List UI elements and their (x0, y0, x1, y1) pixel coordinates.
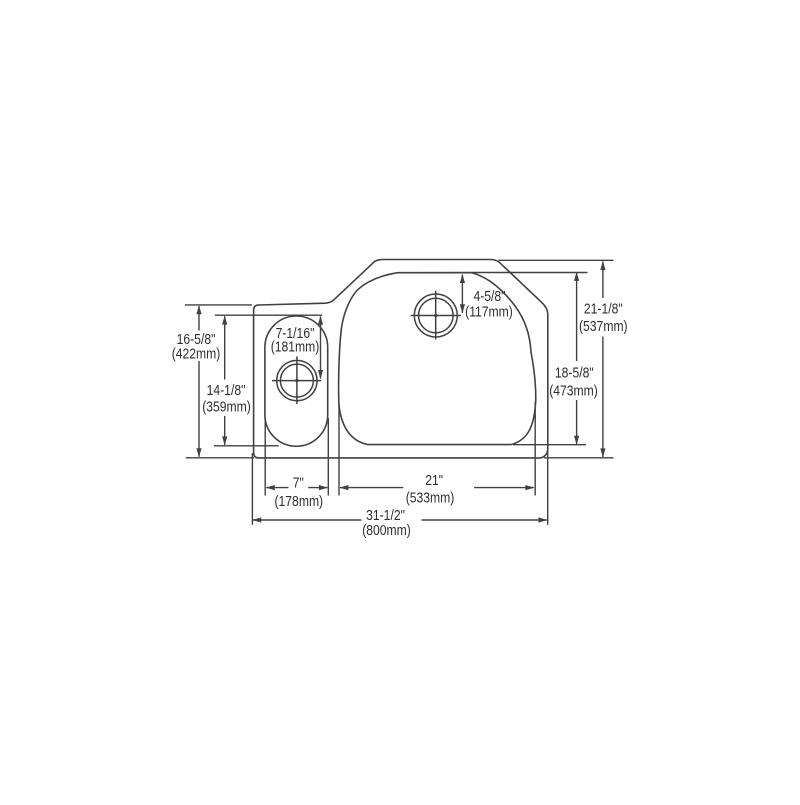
svg-text:(178mm): (178mm) (274, 493, 323, 509)
svg-text:7": 7" (293, 475, 304, 491)
svg-text:4-5/8": 4-5/8" (473, 288, 505, 304)
svg-text:21": 21" (425, 472, 443, 488)
svg-text:14-1/8": 14-1/8" (207, 382, 246, 398)
svg-text:(181mm): (181mm) (271, 339, 320, 355)
svg-text:21-1/8": 21-1/8" (584, 301, 623, 317)
svg-text:31-1/2": 31-1/2" (366, 507, 405, 523)
svg-text:(533mm): (533mm) (406, 490, 455, 506)
svg-text:18-5/8": 18-5/8" (555, 365, 594, 381)
svg-text:(473mm): (473mm) (549, 383, 598, 399)
svg-text:(359mm): (359mm) (202, 399, 251, 415)
svg-text:(422mm): (422mm) (172, 346, 221, 362)
svg-text:(800mm): (800mm) (362, 522, 411, 538)
svg-text:(117mm): (117mm) (465, 304, 513, 320)
svg-text:(537mm): (537mm) (579, 318, 628, 334)
